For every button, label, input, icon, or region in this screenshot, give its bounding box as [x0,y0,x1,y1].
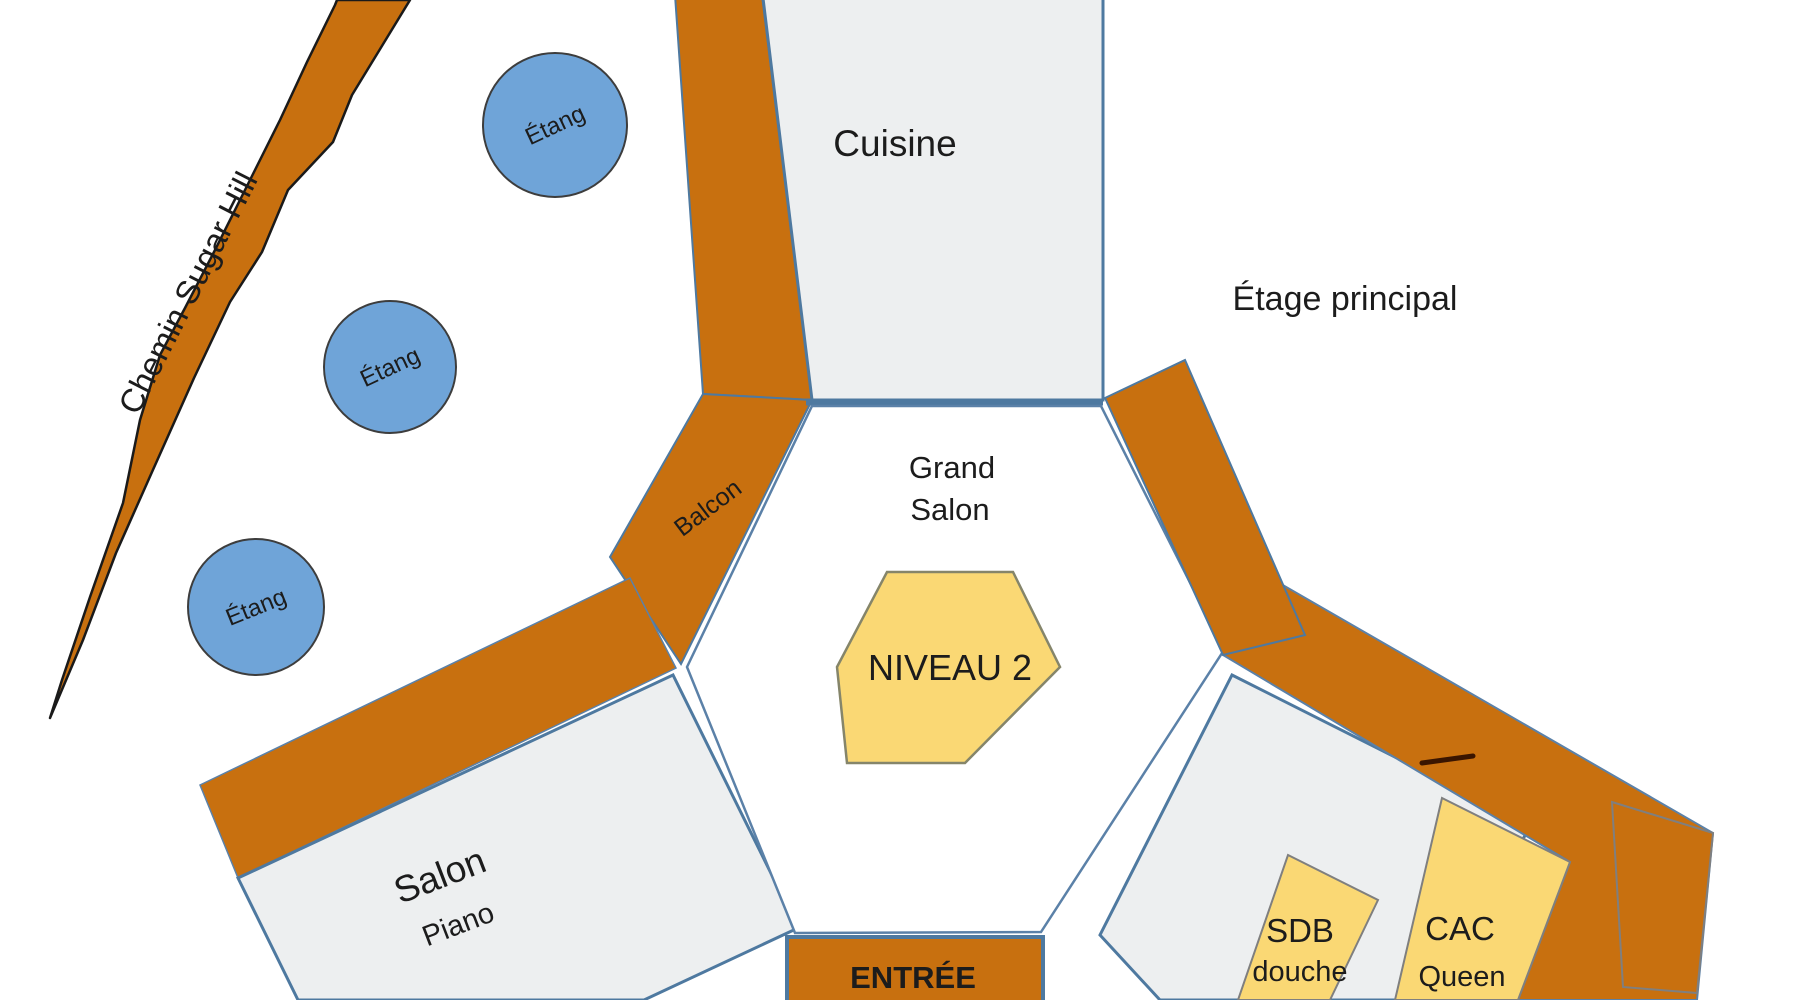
sdb-label: SDB [1266,912,1334,949]
right-end-deck [1612,802,1713,993]
floor-plan-canvas: Chemin Sugar Hill Étang Étang Étang Cuis… [0,0,1800,1000]
niveau2-label: NIVEAU 2 [868,647,1032,688]
sdb-sublabel: douche [1252,956,1347,988]
cuisine-label: Cuisine [833,123,956,164]
entree-label: ENTRÉE [850,960,976,995]
cac-sublabel: Queen [1418,961,1505,993]
floor-plan-page: Chemin Sugar Hill Étang Étang Étang Cuis… [0,0,1800,1000]
grand-salon-label-line1: Grand [909,450,995,485]
cac-label: CAC [1425,910,1495,947]
floor-title: Étage principal [1233,280,1458,318]
cuisine-room [762,0,1103,400]
grand-salon-label-line2: Salon [910,492,989,527]
